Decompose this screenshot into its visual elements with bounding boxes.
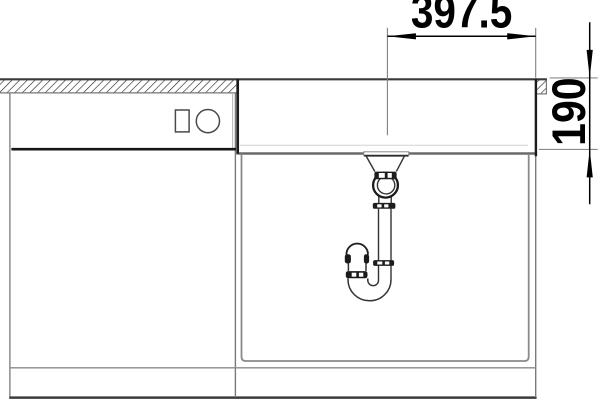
svg-text:397.5: 397.5 [411, 0, 513, 39]
svg-text:190: 190 [543, 77, 596, 146]
